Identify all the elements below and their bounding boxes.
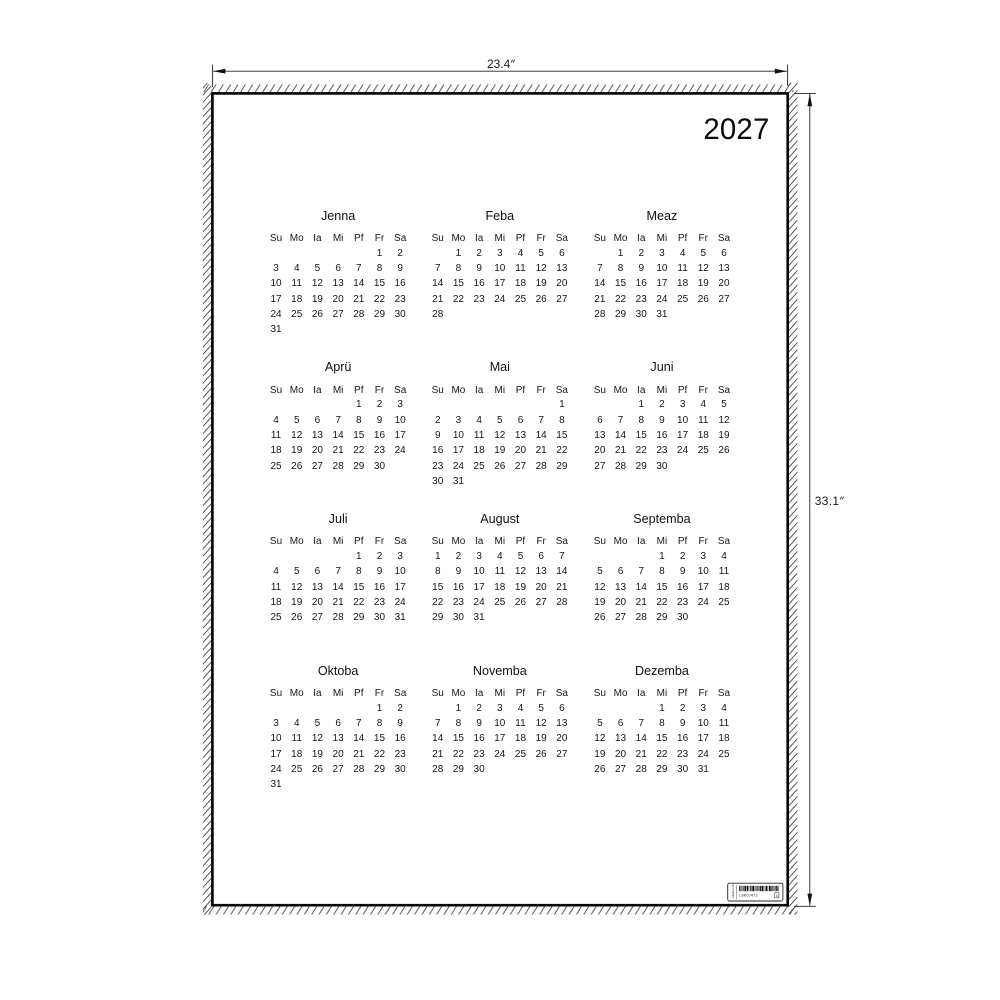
svg-text:4: 4 <box>776 894 778 898</box>
svg-text:L8K0J473: L8K0J473 <box>739 894 758 898</box>
svg-text:Made in Ch: Made in Ch <box>731 884 735 898</box>
